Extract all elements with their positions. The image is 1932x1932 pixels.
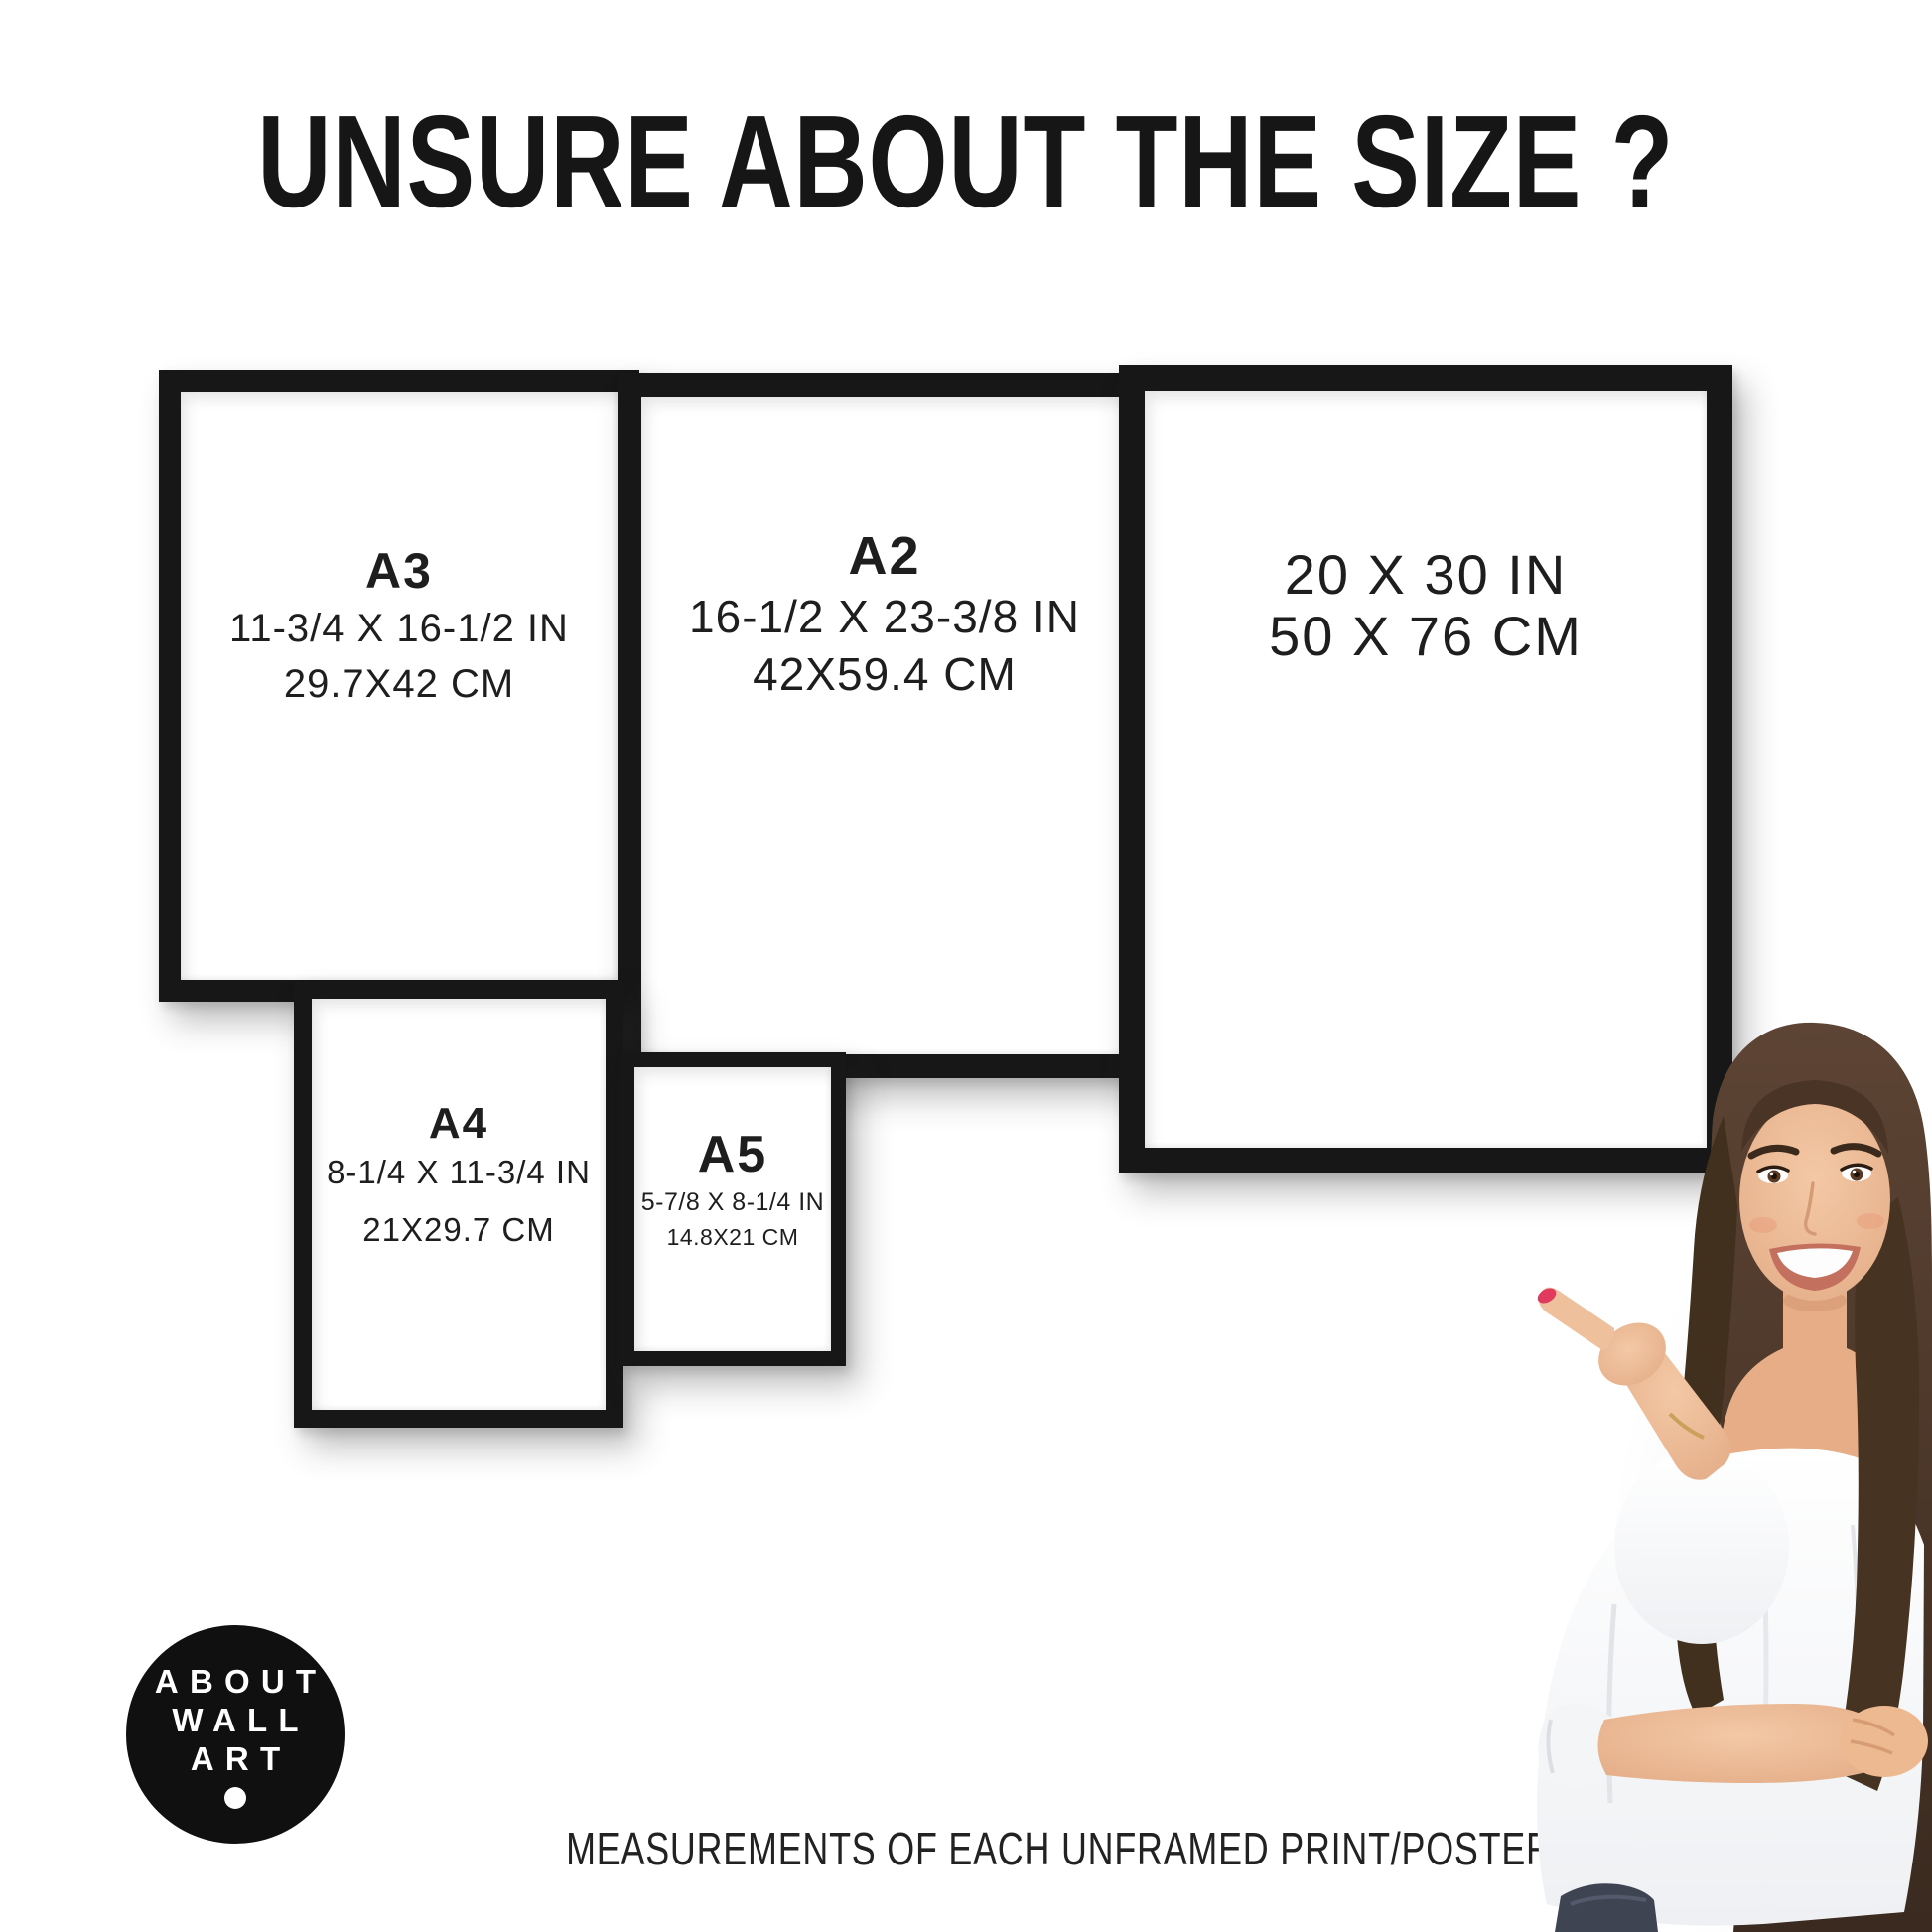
left-blush [1749, 1217, 1777, 1233]
footer-caption-text: MEASUREMENTS OF EACH UNFRAMED PRINT/POST… [566, 1823, 1553, 1874]
page-title: UNSURE ABOUT THE SIZE ? [0, 91, 1932, 232]
footer-caption: MEASUREMENTS OF EACH UNFRAMED PRINT/POST… [427, 1823, 1350, 1874]
logo-dot-icon [224, 1787, 246, 1809]
frame-a3-label: A3 [181, 541, 618, 601]
size-guide-poster: UNSURE ABOUT THE SIZE ? A3 11-3/4 X 16-1… [0, 0, 1932, 1932]
frame-a5: A5 5-7/8 X 8-1/4 IN 14.8X21 CM [620, 1052, 846, 1366]
frame-a2-inches: 16-1/2 X 23-3/8 IN [641, 588, 1128, 645]
face [1739, 1080, 1890, 1301]
frame-a4-label: A4 [312, 1097, 606, 1151]
frame-a4: A4 8-1/4 X 11-3/4 IN 21X29.7 CM [294, 981, 623, 1428]
frame-a4-cm: 21X29.7 CM [312, 1208, 606, 1252]
frame-20x30-text: 20 X 30 IN 50 X 76 CM [1145, 544, 1707, 667]
model-photo [1436, 989, 1932, 1932]
right-eye [1842, 1165, 1871, 1181]
frame-a3: A3 11-3/4 X 16-1/2 IN 29.7X42 CM [159, 370, 639, 1002]
brand-logo-line-3: ART [191, 1739, 291, 1778]
brand-logo-line-1: ABOUT [155, 1662, 327, 1701]
crossed-forearm-skin [1597, 1704, 1883, 1783]
page-title-text: UNSURE ABOUT THE SIZE ? [257, 91, 1674, 232]
right-blush [1857, 1213, 1884, 1229]
frame-a5-cm: 14.8X21 CM [634, 1220, 831, 1254]
frame-a4-inches: 8-1/4 X 11-3/4 IN [312, 1151, 606, 1194]
frame-a4-text: A4 8-1/4 X 11-3/4 IN 21X29.7 CM [312, 1097, 606, 1252]
frame-20x30-inches: 20 X 30 IN [1145, 544, 1707, 606]
frame-a3-cm: 29.7X42 CM [181, 656, 618, 712]
brand-logo: ABOUT WALL ART [126, 1625, 345, 1844]
frame-a3-text: A3 11-3/4 X 16-1/2 IN 29.7X42 CM [181, 541, 618, 712]
left-eye [1758, 1167, 1788, 1183]
frame-a2-cm: 42X59.4 CM [641, 645, 1128, 703]
frame-a5-inches: 5-7/8 X 8-1/4 IN [634, 1184, 831, 1220]
frame-20x30-cm: 50 X 76 CM [1145, 606, 1707, 667]
frame-a5-label: A5 [634, 1125, 831, 1184]
frame-a5-text: A5 5-7/8 X 8-1/4 IN 14.8X21 CM [634, 1125, 831, 1254]
brand-logo-line-2: WALL [172, 1701, 309, 1739]
frame-a2-text: A2 16-1/2 X 23-3/8 IN 42X59.4 CM [641, 524, 1128, 703]
frame-a2-label: A2 [641, 524, 1128, 588]
model-figure [1535, 1023, 1932, 1932]
frame-a2: A2 16-1/2 X 23-3/8 IN 42X59.4 CM [618, 373, 1152, 1078]
frame-a3-inches: 11-3/4 X 16-1/2 IN [181, 601, 618, 656]
